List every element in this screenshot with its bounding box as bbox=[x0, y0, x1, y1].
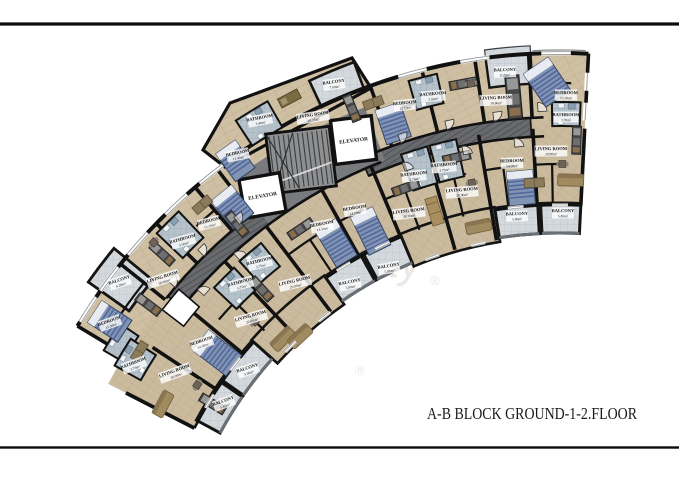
svg-text:20.90m²: 20.90m² bbox=[545, 152, 557, 156]
svg-text:BEDROOM: BEDROOM bbox=[500, 158, 525, 164]
svg-text:A-B BLOCK GROUND-1-2.FLOOR: A-B BLOCK GROUND-1-2.FLOOR bbox=[427, 404, 637, 423]
svg-text:BALCONY: BALCONY bbox=[552, 208, 575, 213]
svg-text:5.85m²: 5.85m² bbox=[558, 214, 568, 218]
svg-text:BALCONY: BALCONY bbox=[494, 67, 517, 73]
svg-text:BATHROOM: BATHROOM bbox=[553, 112, 581, 117]
svg-text:®: ® bbox=[355, 363, 365, 378]
svg-text:14.50m²: 14.50m² bbox=[506, 164, 518, 168]
svg-text:BEDROOM: BEDROOM bbox=[554, 90, 579, 95]
svg-text:3.70m²: 3.70m² bbox=[561, 118, 571, 122]
svg-text:5.80m²: 5.80m² bbox=[512, 217, 522, 221]
svg-text:BALCONY: BALCONY bbox=[506, 211, 529, 217]
svg-text:13.30m²: 13.30m² bbox=[560, 96, 572, 100]
svg-text:18.60m²: 18.60m² bbox=[490, 101, 502, 106]
svg-text:3.50m²: 3.50m² bbox=[428, 97, 438, 102]
svg-text:®: ® bbox=[430, 273, 440, 288]
svg-text:LIVING ROOM: LIVING ROOM bbox=[535, 146, 568, 151]
svg-text:8.20m²: 8.20m² bbox=[500, 73, 510, 77]
